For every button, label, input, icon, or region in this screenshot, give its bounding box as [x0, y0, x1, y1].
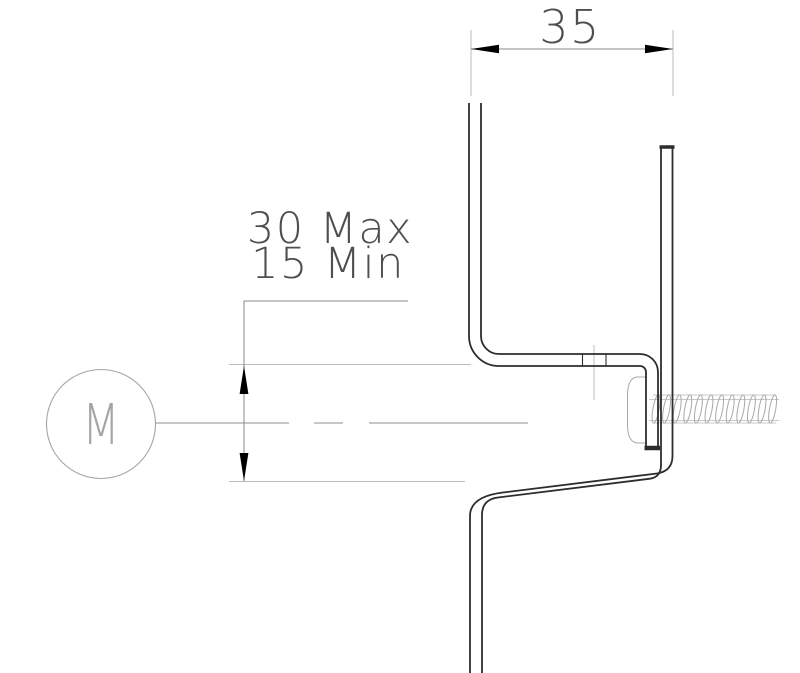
bracket-profile: [469, 103, 660, 449]
height-arrow-up: [240, 366, 249, 394]
height-dimension: 30 Max 15 Min: [240, 204, 414, 481]
screw-thread-coil: [693, 394, 704, 423]
screw-thread-coil: [746, 394, 757, 423]
screw-thread-coil: [714, 394, 725, 423]
screw-thread-root-lines: [649, 395, 779, 423]
panel-outer-surface: [470, 147, 673, 673]
width-dimension: 35: [471, 0, 673, 54]
screw-thread-coil: [661, 394, 672, 423]
motor-label: M: [82, 392, 120, 458]
motor-symbol: M: [47, 370, 156, 479]
bracket-inner-surface: [481, 103, 658, 449]
screw: [628, 377, 780, 443]
width-dimension-label: 35: [539, 0, 601, 54]
screw-thread-coil: [682, 394, 693, 423]
screw-thread-coil: [735, 394, 746, 423]
width-arrow-left: [471, 45, 499, 53]
height-dimension-min-label: 15 Min: [251, 239, 405, 289]
height-dimension-leader: [244, 301, 408, 481]
screw-head: [628, 377, 648, 443]
panel-inner-surface: [482, 147, 661, 673]
bracket-mount-drawing: M: [0, 0, 800, 673]
screw-thread-coil: [767, 394, 778, 423]
screw-thread-coil: [703, 394, 714, 423]
height-arrow-down: [240, 453, 249, 481]
panel-profile: [470, 147, 675, 673]
screw-thread-coils: [650, 394, 778, 423]
screw-thread-coil: [725, 394, 736, 423]
screw-thread-coil: [756, 394, 767, 423]
technical-drawing-canvas: M: [0, 0, 800, 673]
width-arrow-right: [645, 45, 673, 53]
screw-thread-coil: [650, 394, 661, 423]
bracket-outer-surface: [469, 103, 646, 449]
